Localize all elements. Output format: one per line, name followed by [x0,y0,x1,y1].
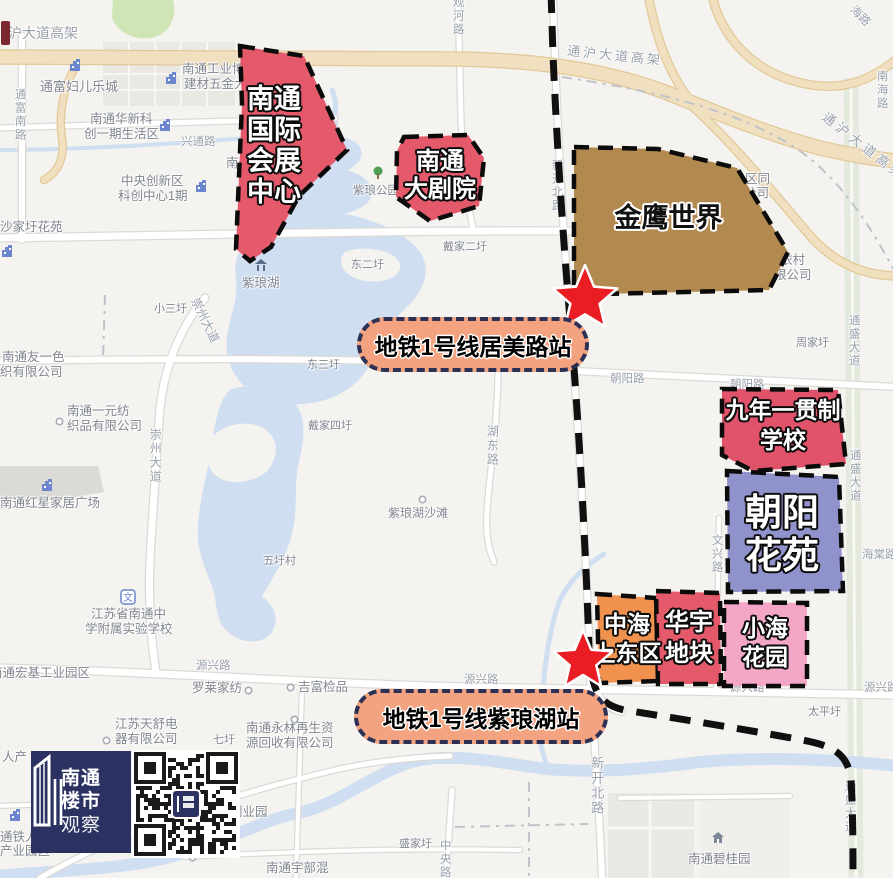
logo-text-line2: 楼市 [61,790,101,813]
qr-code [132,750,240,858]
station-pills: 地铁1号线居美路站地铁1号线紫琅湖站 [0,0,893,878]
station-pill-0: 地铁1号线居美路站 [357,317,589,372]
logo-text-line1: 南通 [61,767,101,790]
watermark-logo: 南通 楼市 观察 [31,751,131,853]
logo-text-line3: 观察 [61,814,101,837]
logo-building-icon [31,751,65,829]
station-pill-1: 地铁1号线紫琅湖站 [354,689,608,744]
map-screenshot: 沪大道高架通沪大道高架通沪大道高架通富妇儿乐城南通工业博建材五金大南通华新科创一… [0,0,893,878]
